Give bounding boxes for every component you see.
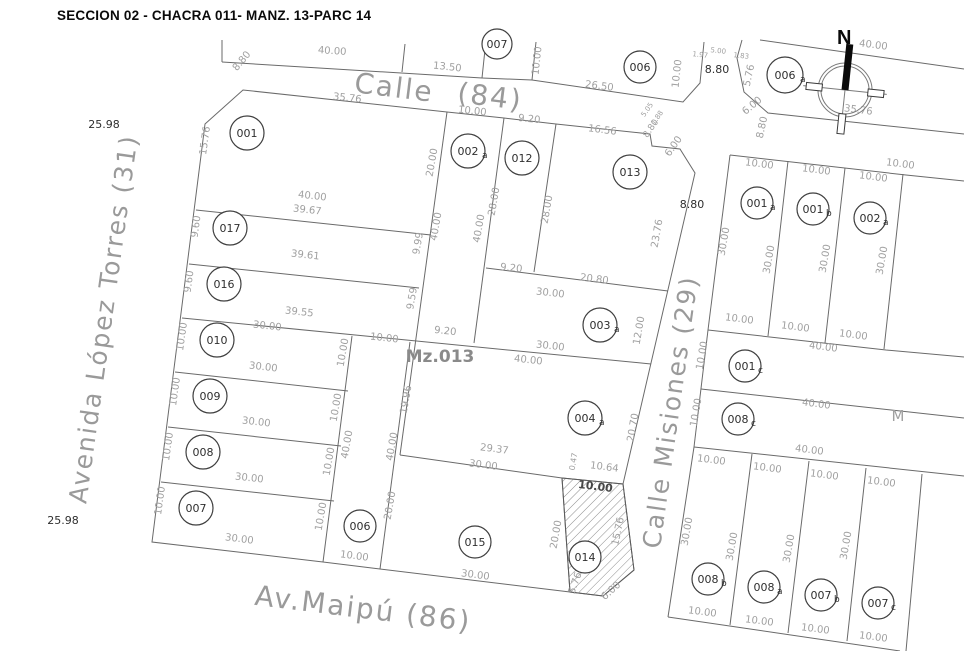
street-name: Avenida López Torres (31) [63, 132, 144, 505]
parcel-number: 004 [575, 412, 596, 425]
dimension-label: 9.59 [405, 287, 420, 311]
dimension-label: 30.00 [535, 340, 565, 354]
dimension-label: 9.60 [190, 215, 204, 239]
parcel-number: 008 [728, 413, 749, 426]
dimension-label: 30.00 [241, 416, 271, 430]
dimension-label: 13.50 [432, 61, 462, 75]
dimension-label: 40.00 [385, 432, 401, 462]
parcel-marker: 014 [569, 541, 601, 573]
dimension-label: 30.00 [468, 458, 498, 472]
dimension-label: 10.00 [687, 605, 717, 619]
dimension-label: 15.76 [198, 126, 213, 156]
parcel-marker: 002a [451, 134, 488, 168]
dimension-label: 20.00 [425, 148, 441, 178]
dimension-label: 30.00 [460, 568, 490, 582]
dimension-label: 10.00 [809, 468, 839, 482]
dimension-label: 10.00 [744, 614, 774, 628]
parcel-number: 013 [620, 166, 641, 179]
parcel-marker: 001b [797, 193, 832, 225]
parcel-marker: 016 [207, 267, 241, 301]
dimension-label: 30.00 [782, 534, 798, 564]
dimension-label: 8.80 [680, 198, 705, 211]
dimension-label: 20.80 [579, 272, 609, 286]
parcel-marker: 003a [583, 308, 620, 342]
parcel-number: 017 [220, 222, 241, 235]
parcel-number: 001 [747, 197, 768, 210]
dimension-label: 40.00 [429, 212, 445, 242]
parcel-suffix: a [614, 325, 620, 335]
dimension-label: 40.00 [858, 38, 888, 52]
dimension-label: 10.00 [838, 328, 868, 342]
dimension-label: 28.00 [540, 195, 556, 225]
parcel-marker: 008 [186, 435, 220, 469]
dimension-label: 10.00 [336, 338, 352, 368]
dimension-label: 10.00 [153, 486, 168, 516]
parcel-marker: 015 [459, 526, 491, 558]
dimension-label: 10.00 [724, 312, 754, 326]
parcel-suffix: c [758, 366, 763, 376]
dimension-label: 9.20 [500, 262, 523, 275]
street-name: Calle [353, 66, 436, 108]
parcel-number: 002 [458, 145, 479, 158]
parcel-number: 007 [868, 597, 889, 610]
dimension-label: 10.00 [885, 157, 915, 171]
parcel-marker: 008a [748, 571, 783, 603]
dimension-label: 6.00 [663, 134, 685, 159]
parcel-number: 003 [590, 319, 611, 332]
dimension-label: 10.00 [858, 170, 888, 184]
dimension-label: 40.00 [794, 443, 824, 457]
parcel-suffix: b [834, 595, 840, 605]
parcel-number: 001 [803, 203, 824, 216]
dimension-label: 10.00 [369, 332, 399, 346]
parcel-marker: 002a [854, 202, 889, 234]
dimension-label: 30.00 [875, 246, 891, 276]
dimension-label: 9.20 [518, 113, 541, 126]
parcel-marker: 007b [805, 579, 840, 611]
dimension-label: 40.00 [801, 397, 831, 411]
parcel-number: 007 [811, 589, 832, 602]
dimension-label: 29.37 [479, 442, 509, 456]
dimension-label: 30.00 [535, 287, 565, 301]
dimension-label: 10.00 [168, 377, 183, 407]
parcel-marker: 004a [568, 401, 605, 435]
dimension-label: 10.00 [339, 549, 369, 563]
parcel-number: 015 [465, 536, 486, 549]
dimension-label: 10.00 [866, 475, 896, 489]
boundary-line [906, 474, 922, 651]
plan-canvas: 40.0013.5010.0026.5010.001.975.001.838.8… [0, 0, 964, 651]
parcel-suffix: a [883, 218, 889, 228]
parcel-marker: 007c [862, 587, 896, 619]
parcel-marker: 001 [230, 116, 264, 150]
block-label: Mz.013 [406, 347, 475, 367]
dimension-label: 40.00 [318, 45, 347, 58]
dimension-label: 30.00 [818, 244, 834, 274]
dimension-label: 30.00 [252, 320, 282, 334]
dimension-label: 10.00 [531, 46, 545, 76]
parcel-number: 007 [487, 38, 508, 51]
dimension-label: 8.80 [231, 49, 254, 73]
parcel-marker: 006 [624, 51, 656, 83]
dimension-label: 39.67 [292, 204, 322, 218]
dimension-label: 10.00 [801, 163, 831, 177]
parcel-marker: 012 [505, 141, 539, 175]
dimension-label: 39.55 [284, 306, 314, 320]
dimension-label: 19.96 [399, 385, 415, 415]
parcel-number: 008 [698, 573, 719, 586]
dimension-label: 8.80 [755, 115, 770, 139]
dimension-label: 40.00 [472, 214, 488, 244]
dimension-label: 12.00 [632, 316, 648, 346]
cadastral-plan: 40.0013.5010.0026.5010.001.975.001.838.8… [0, 0, 964, 651]
dimension-label: M [892, 407, 905, 425]
dimension-label: 10.00 [671, 59, 685, 89]
dimension-label: 10.00 [780, 320, 810, 334]
dimension-label: 0.47 [568, 452, 580, 471]
dimension-label: 23.76 [650, 219, 666, 249]
parcel-marker: 013 [613, 155, 647, 189]
parcel-number: 016 [214, 278, 235, 291]
dimension-label: 30.00 [248, 361, 278, 375]
dimension-label: 10.64 [589, 460, 619, 474]
parcel-number: 006 [350, 520, 371, 533]
parcel-number: 010 [207, 334, 228, 347]
parcel-number: 001 [735, 360, 756, 373]
parcel-number: 002 [860, 212, 881, 225]
parcel-marker: 009 [193, 379, 227, 413]
parcel-suffix: a [770, 203, 776, 213]
parcel-marker: 006 [344, 510, 376, 542]
dimension-label: 10.00 [695, 341, 711, 371]
parcel-number: 008 [193, 446, 214, 459]
dimension-label: 5.00 [710, 46, 726, 56]
dimension-label: 30.00 [680, 517, 696, 547]
parcel-suffix: a [482, 151, 488, 161]
dimension-label: 26.50 [584, 79, 614, 93]
parcel-suffix: a [777, 587, 783, 597]
dimension-label: 25.98 [47, 514, 79, 527]
dimension-label: 28.00 [487, 187, 503, 217]
dimension-label: 30.00 [717, 227, 733, 257]
dimension-label: 10.00 [696, 453, 726, 467]
dimension-label: 16.56 [587, 123, 617, 137]
parcel-marker: 001c [729, 350, 763, 382]
parcel-marker: 007 [482, 29, 512, 59]
dimension-label: 20.00 [549, 520, 565, 550]
dimension-label: 40.00 [808, 340, 838, 354]
dimension-label: 10.00 [744, 157, 774, 171]
dimension-label: 20.00 [383, 491, 399, 521]
dimension-label: 40.00 [513, 354, 543, 368]
parcel-marker: 008b [692, 563, 727, 595]
parcel-marker: 008c [722, 403, 756, 435]
parcel-suffix: c [751, 419, 756, 429]
dimension-label: 30.00 [839, 531, 855, 561]
parcel-suffix: a [800, 75, 806, 85]
dimension-label: 10.00 [800, 622, 830, 636]
dimension-label: 39.61 [290, 249, 320, 263]
dimension-label: 10.00 [752, 461, 782, 475]
parcel-suffix: b [826, 209, 832, 219]
parcel-marker: 006a [767, 57, 806, 93]
dimension-label: 30.00 [234, 472, 264, 486]
dimension-label: 10.00 [322, 447, 338, 477]
dimension-label: 9.20 [434, 325, 457, 338]
dimension-label: 9.60 [183, 270, 197, 294]
dimension-label: 10.00 [161, 432, 176, 462]
parcel-suffix: a [599, 418, 605, 428]
dimension-label: 20.70 [626, 413, 642, 443]
dimension-label: 30.00 [224, 532, 254, 546]
parcel-number: 001 [237, 127, 258, 140]
parcel-marker: 007 [179, 491, 213, 525]
dimension-label: 1.97 [692, 50, 708, 60]
parcel-marker: 017 [213, 211, 247, 245]
parcel-number: 009 [200, 390, 221, 403]
dimension-label: 10.00 [175, 322, 190, 352]
parcel-suffix: b [721, 579, 727, 589]
parcel-marker: 001a [741, 187, 776, 219]
dimension-label: 9.99 [411, 232, 426, 256]
plan-title: SECCION 02 - CHACRA 011- MANZ. 13-PARC 1… [57, 8, 372, 23]
parcel-number: 006 [630, 61, 651, 74]
boundary-line [402, 44, 405, 72]
dimension-label: 40.00 [340, 430, 356, 460]
parcel-number: 006 [775, 69, 796, 82]
dimension-label: 25.98 [88, 118, 120, 131]
parcel-marker: 010 [200, 323, 234, 357]
dimension-label: 10.00 [329, 393, 345, 423]
street-name: Av.Maipú (86) [253, 579, 473, 638]
dimension-label: 6.00 [740, 95, 764, 118]
dimension-label: 40.00 [297, 190, 327, 204]
parcel-number: 007 [186, 502, 207, 515]
parcel-suffix: c [891, 603, 896, 613]
dimension-label: 8.80 [705, 63, 730, 76]
dimension-label: 30.00 [725, 532, 741, 562]
dimension-label: 5.76 [742, 63, 757, 87]
parcel-number: 012 [512, 152, 533, 165]
dimension-label: 10.00 [858, 630, 888, 644]
dimension-label: 10.00 [689, 398, 705, 428]
parcel-number: 008 [754, 581, 775, 594]
parcel-number: 014 [575, 551, 596, 564]
dimension-label: 1.83 [733, 51, 749, 61]
